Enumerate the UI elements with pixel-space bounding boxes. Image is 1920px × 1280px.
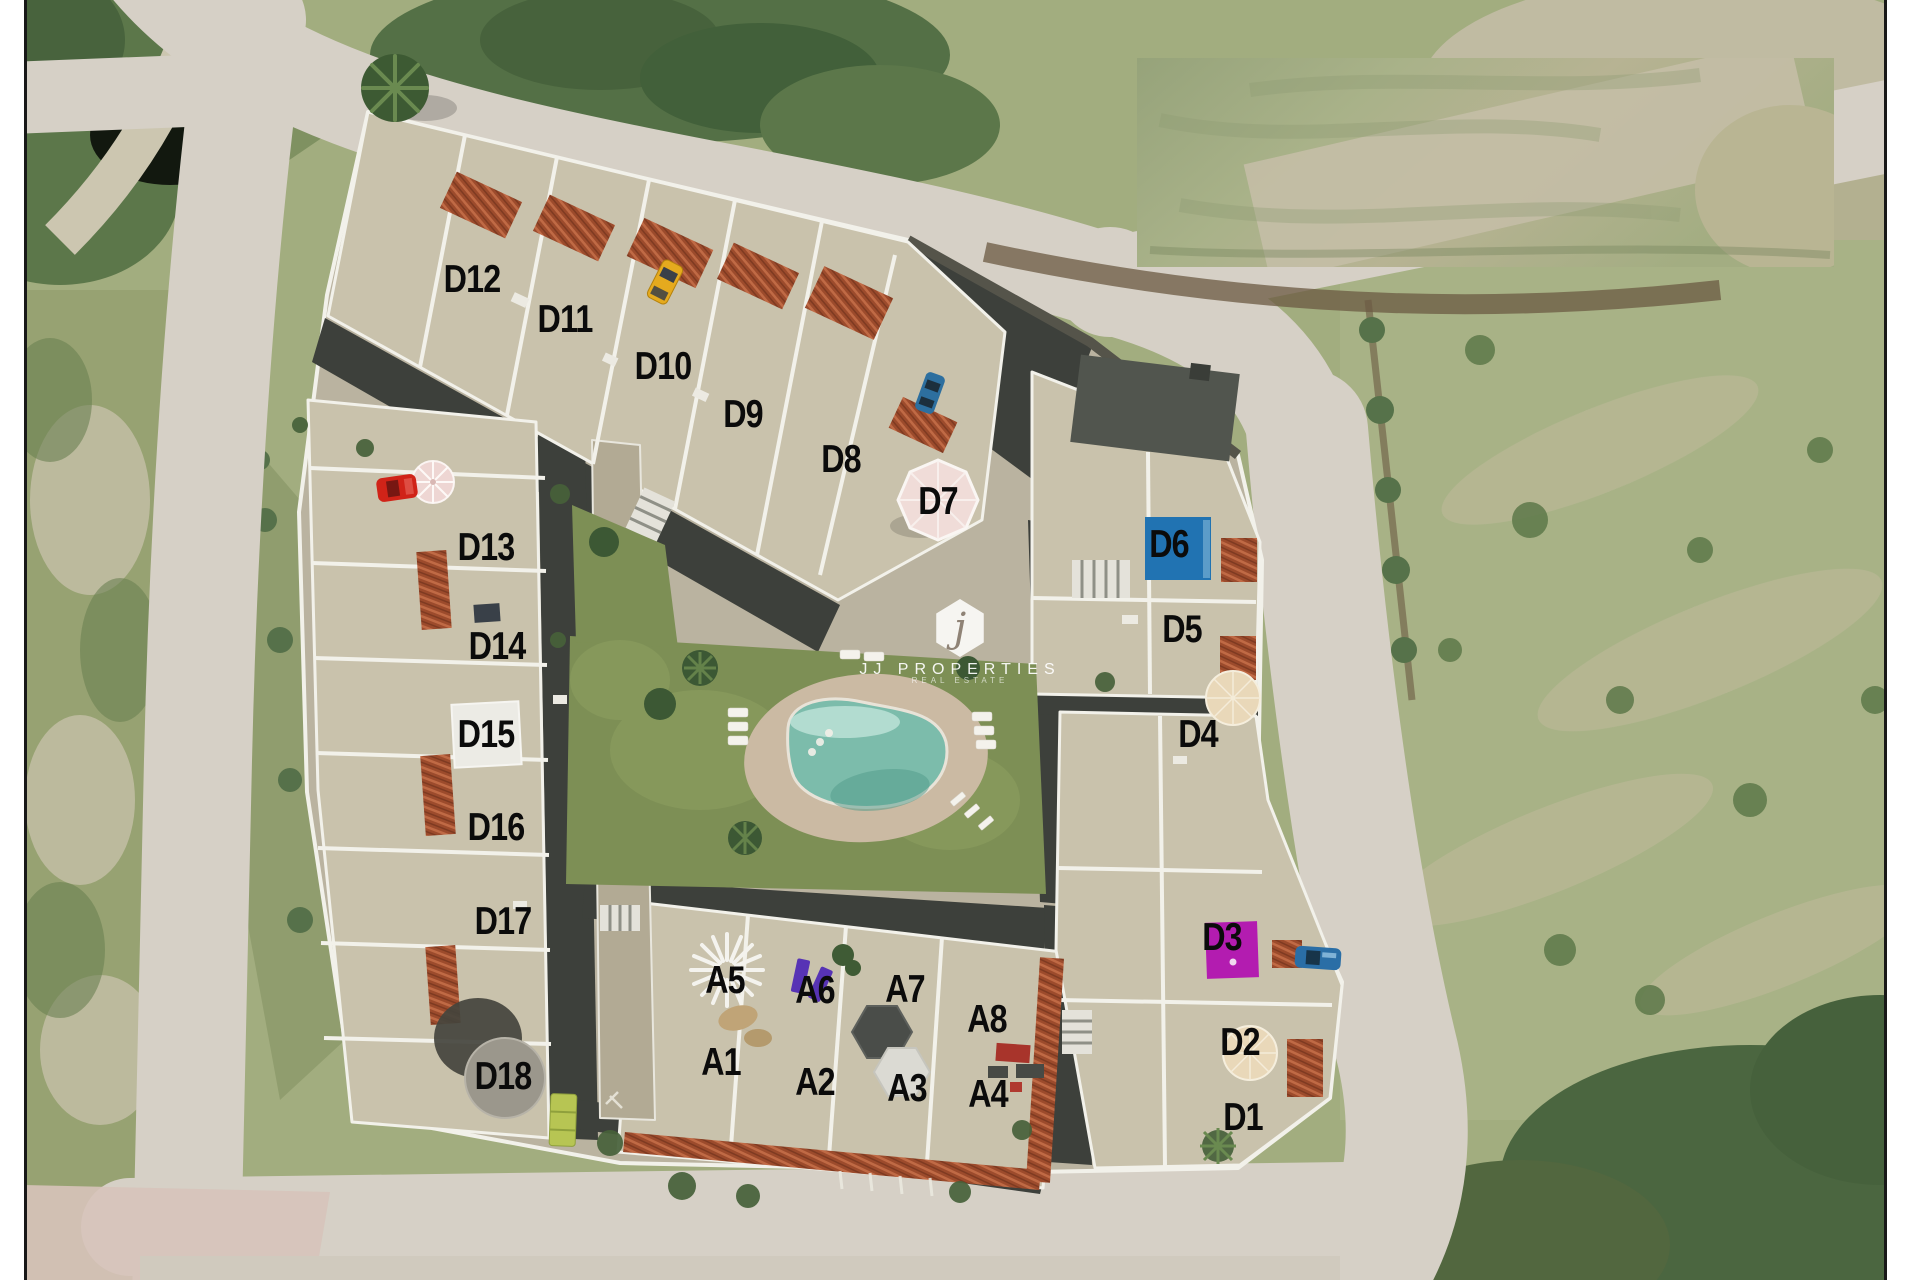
- development-site-plan: D12D11D10D9D8D7D6D5D4D13D14D15D16D17D18A…: [0, 0, 1920, 1280]
- lime-container: [549, 1094, 577, 1147]
- satellite-render: [0, 0, 1920, 1280]
- solar-panel: [473, 603, 500, 623]
- cream-umbrella-D4: [1206, 671, 1260, 725]
- round-terrace-D18: [465, 1038, 545, 1118]
- rooftop-panel-D3: [1205, 921, 1259, 979]
- terrace-square-D15: [451, 701, 521, 767]
- blue-car-east: [1294, 945, 1341, 970]
- cream-umbrella-D2: [1223, 1026, 1277, 1080]
- blurred-image-patch: [1137, 39, 1885, 282]
- pink-umbrella: [412, 461, 454, 503]
- rooftop-pool-D6: [1145, 517, 1211, 580]
